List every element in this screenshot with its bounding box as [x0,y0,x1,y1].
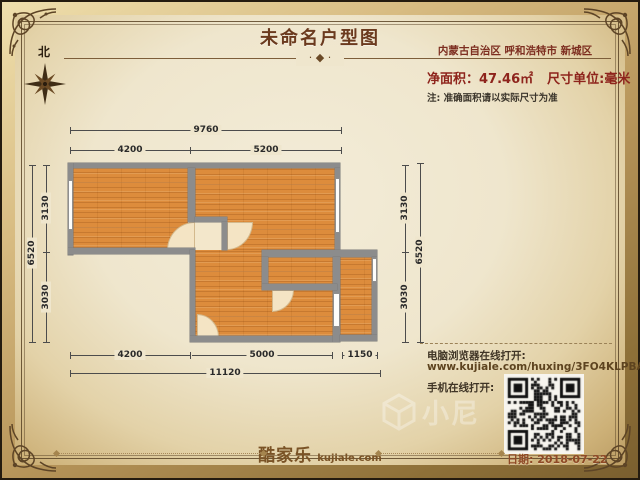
logo-flank-line [380,453,498,454]
location-text: 内蒙古自治区 呼和浩特市 新城区 [420,43,610,58]
logo-domain-text: kujiale.com [317,453,382,464]
dim-label: 9760 [190,125,221,135]
window [68,180,73,230]
dim-label: 3130 [41,192,51,223]
area-value: 净面积：47.46㎡ [427,72,533,87]
footer-separator [420,343,612,344]
wall [340,335,377,341]
dim-label: 4200 [114,350,145,360]
dim-label: 3030 [400,281,410,312]
dim-label: 5000 [246,350,277,360]
unit-label: 尺寸单位:毫米 [547,72,630,87]
wall [222,222,227,250]
watermark-text: 小尼 [422,392,480,431]
dim-label: 11120 [206,368,243,378]
dimension-line [70,150,342,151]
logo-flank-line [58,453,260,454]
area-note: 注: 准确面积请以实际尺寸为准 [427,90,558,104]
cube-logo-icon [382,393,416,431]
dim-label: 5200 [250,145,281,155]
window [333,293,340,327]
floorplan-page: 未命名户型图 · ◆ · 北 内蒙古自治区 呼和浩特市 新城区 净面积：47.4… [0,0,640,480]
dim-label: 6520 [27,237,37,268]
wall [262,284,337,290]
wall [190,336,340,342]
dim-label: 6520 [415,236,425,267]
dim-label: 4200 [114,145,145,155]
compass-rose-icon [24,63,66,105]
net-area-text: 净面积：47.46㎡尺寸单位:毫米 [427,68,630,87]
dim-label: 1150 [344,350,375,360]
wall [188,168,195,222]
window [335,178,340,233]
dim-label: 3130 [400,192,410,223]
balcony-floor [340,257,372,335]
wall [68,248,195,254]
wall [68,163,340,168]
divider-ornament-icon: · ◆ · [296,50,344,66]
window [372,258,377,282]
wall [190,250,195,342]
north-label: 北 [38,43,50,60]
wall [262,250,377,257]
logo-cn-text: 酷家乐 [258,446,312,466]
watermark: 小尼 [382,392,480,431]
share-url: www.kujiale.com/huxing/3FO4KLPBAJPP [427,361,640,373]
dim-label: 3030 [41,281,51,312]
